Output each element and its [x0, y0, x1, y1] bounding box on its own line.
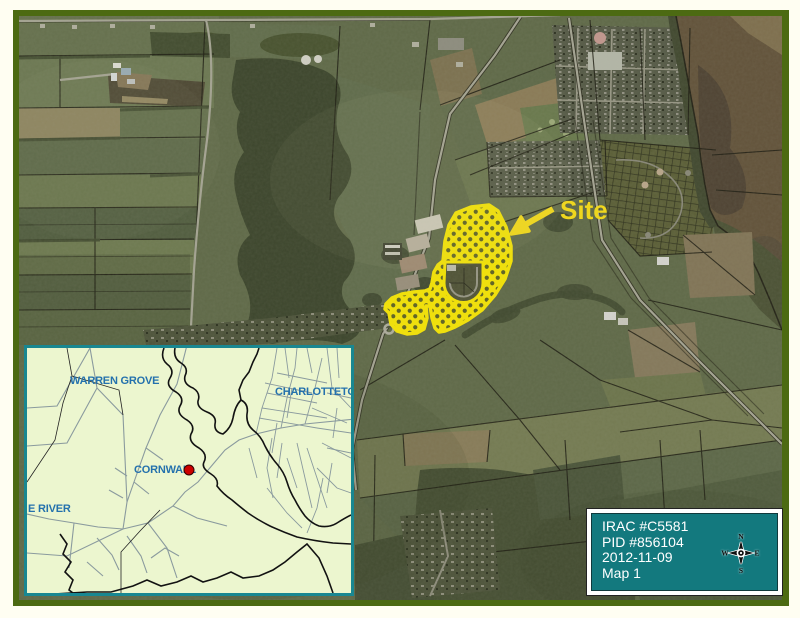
svg-text:CHARLOTTETOWN: CHARLOTTETOWN: [275, 386, 351, 398]
svg-text:WARREN GROVE: WARREN GROVE: [70, 375, 159, 387]
svg-text:W: W: [721, 549, 729, 558]
svg-text:N: N: [738, 532, 744, 541]
svg-text:S: S: [739, 566, 743, 575]
svg-text:E RIVER: E RIVER: [28, 503, 71, 515]
svg-text:E: E: [754, 549, 759, 558]
